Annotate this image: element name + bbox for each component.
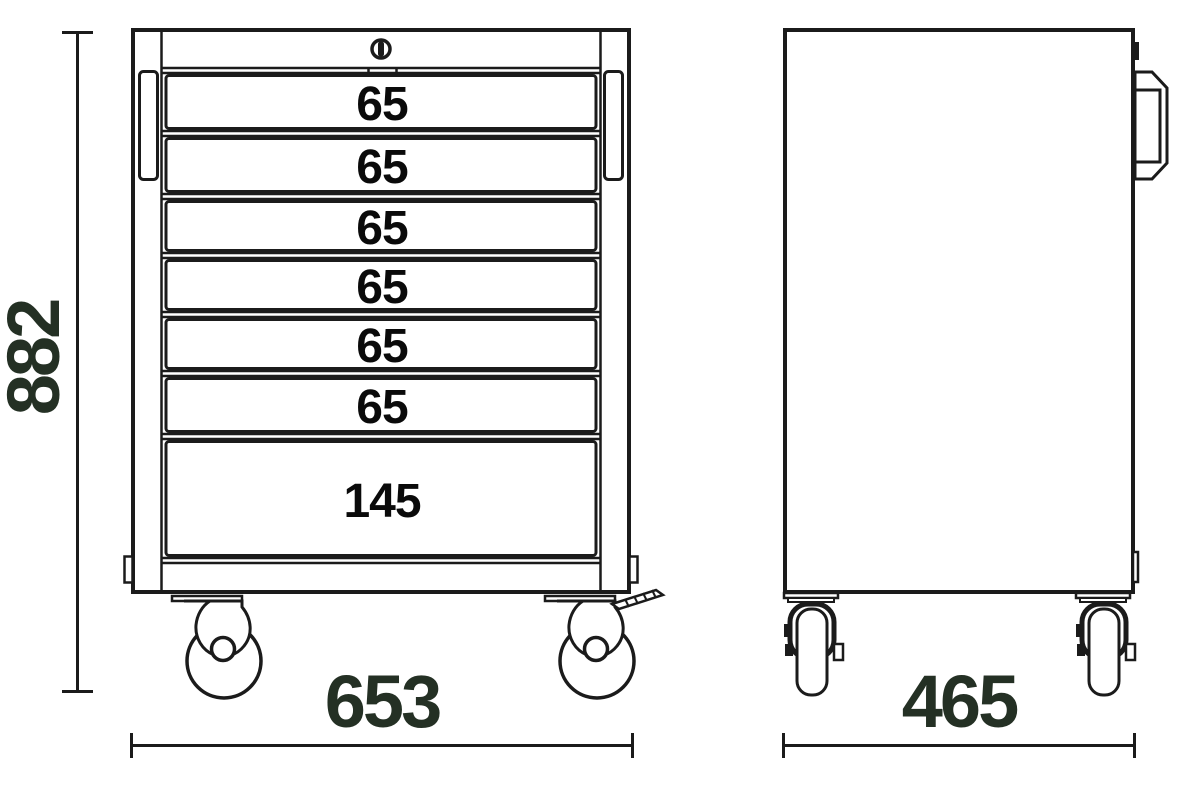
side-view	[784, 30, 1167, 695]
side-top-tab	[1133, 42, 1139, 60]
drawer-3: 65	[166, 202, 596, 256]
drawer-size-label: 65	[356, 261, 408, 314]
drawer-size-label: 65	[356, 381, 408, 434]
drawer-4: 65	[166, 261, 596, 315]
drawer-size-label: 145	[343, 475, 420, 528]
width-dimension-value: 653	[325, 660, 440, 743]
drawer-size-label: 65	[356, 78, 408, 131]
drawer-1: 65	[166, 76, 596, 132]
drawer-6: 65	[166, 379, 596, 435]
height-dimension-value: 882	[0, 300, 75, 415]
drawer-7: 145	[166, 442, 596, 556]
front-right-caster-icon	[545, 590, 663, 698]
right-base-tab	[630, 557, 638, 583]
drawer-size-label: 65	[356, 202, 408, 255]
height-dimension: 882	[0, 31, 93, 693]
side-rear-caster-icon	[1076, 593, 1135, 695]
side-front-caster-icon	[784, 593, 843, 695]
drawer-5: 65	[166, 320, 596, 374]
right-handle-rail	[605, 72, 623, 180]
depth-dimension: 465	[783, 660, 1135, 758]
side-carry-handle-icon	[1135, 72, 1167, 179]
side-bottom-tab	[1133, 552, 1138, 582]
depth-dimension-value: 465	[902, 660, 1018, 743]
drawer-2: 65	[166, 139, 596, 195]
drawer-size-label: 65	[356, 141, 408, 194]
front-view: 65 65 65 65 65 65 145	[125, 30, 664, 698]
left-base-tab	[125, 557, 133, 583]
tool-cabinet-diagram: 882	[0, 0, 1200, 811]
left-handle-rail	[140, 72, 158, 180]
drawer-size-label: 65	[356, 320, 408, 373]
front-left-caster-icon	[172, 596, 261, 698]
technical-drawing-canvas: 882	[0, 0, 1200, 811]
side-cabinet-outline	[785, 30, 1133, 592]
